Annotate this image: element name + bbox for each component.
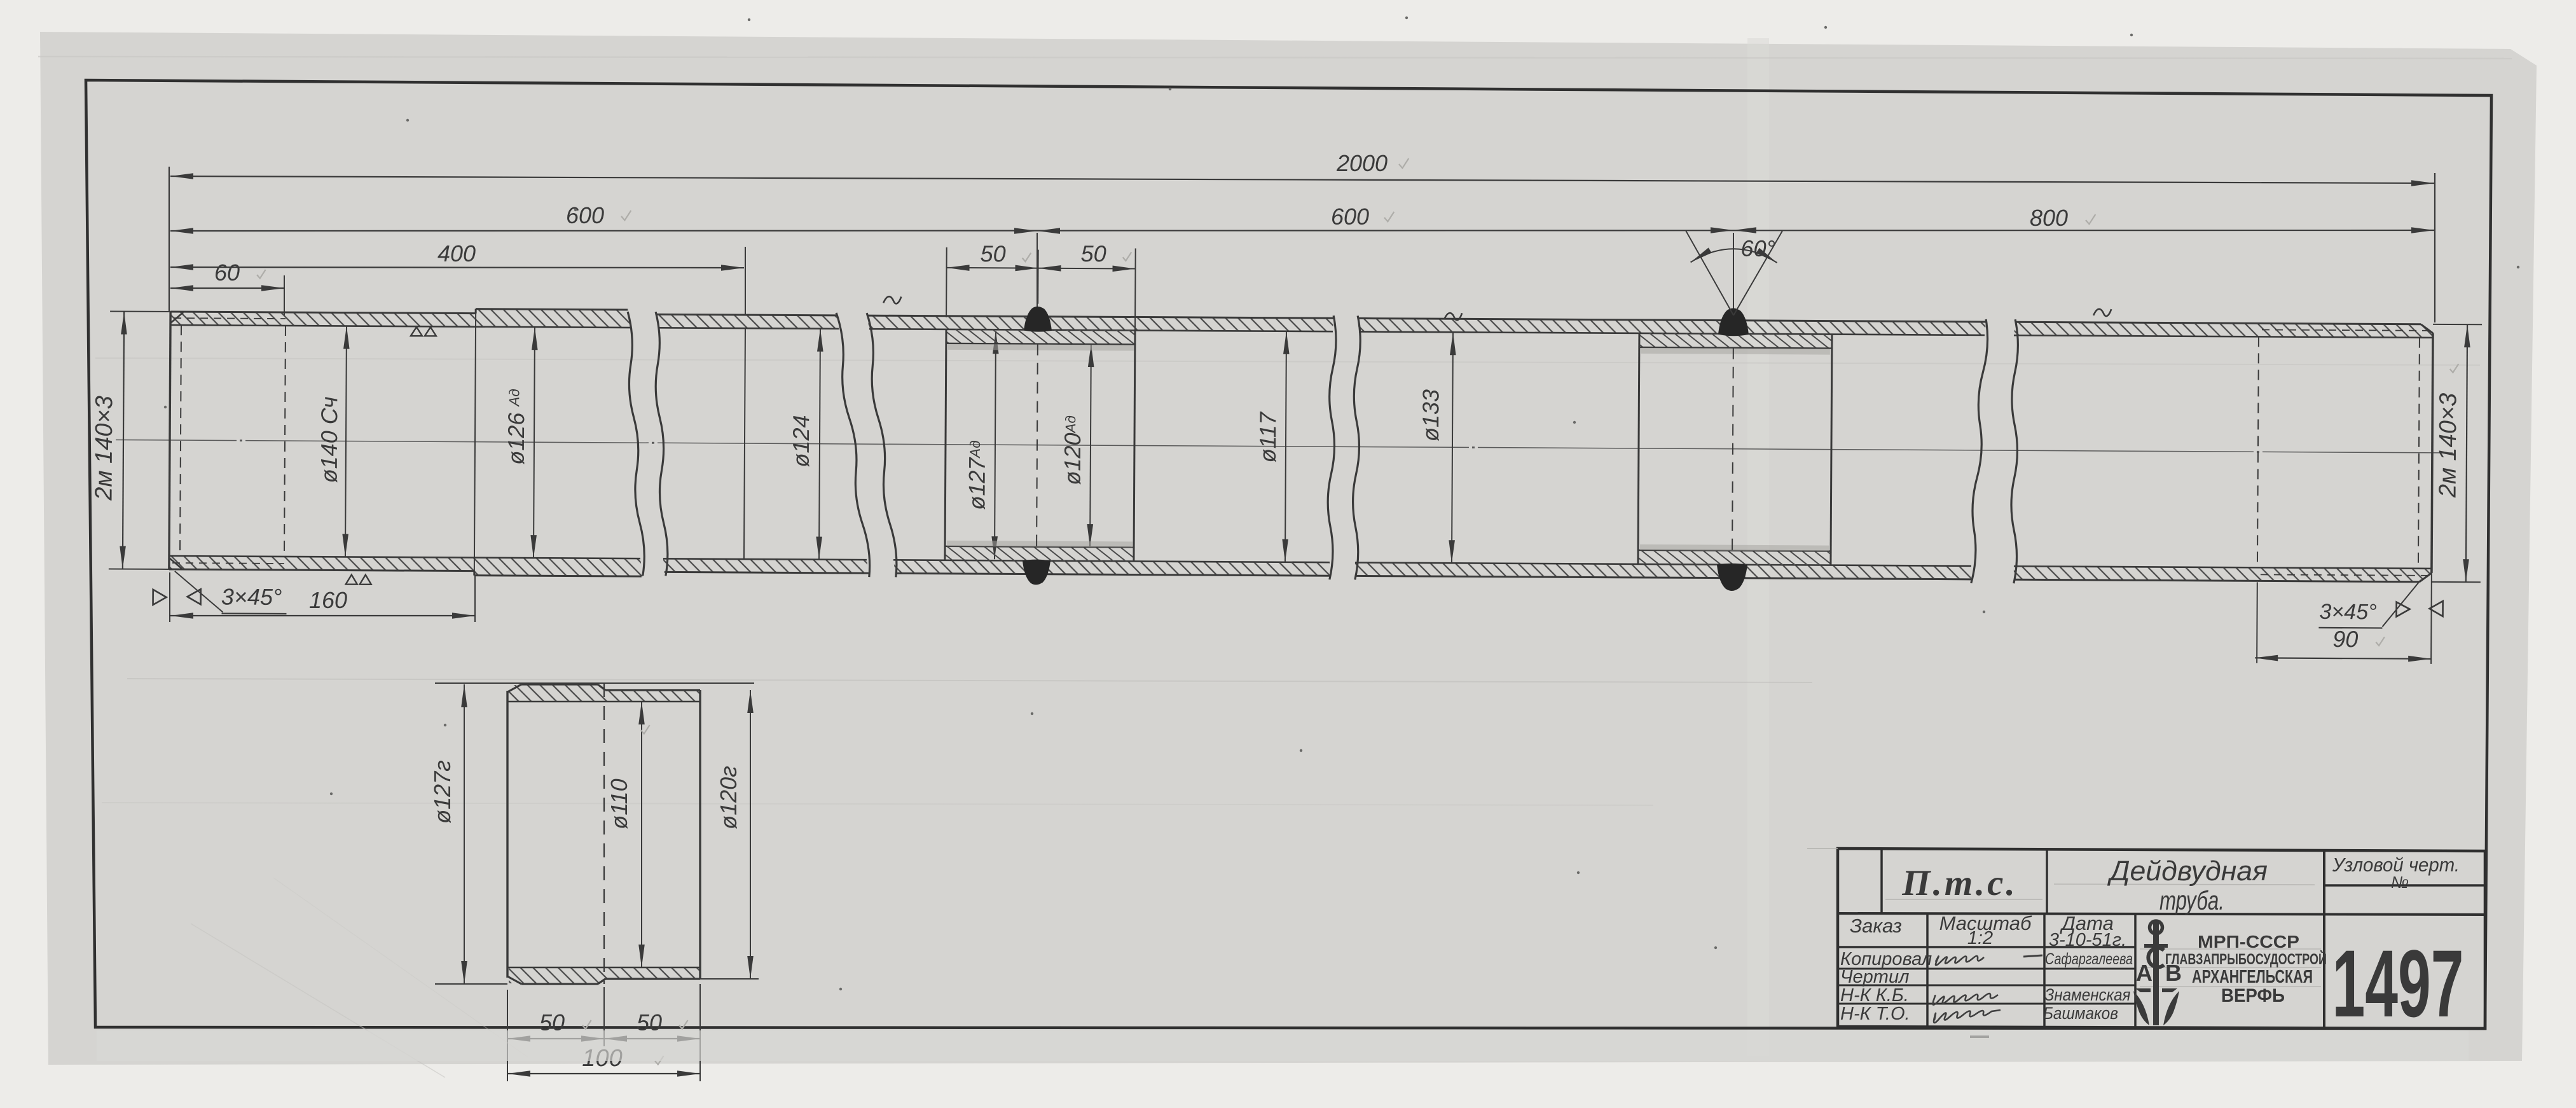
svg-text:ВЕРФЬ: ВЕРФЬ: [2221, 985, 2285, 1006]
svg-text:А: А: [2136, 960, 2152, 986]
svg-text:800: 800: [2030, 205, 2068, 231]
svg-text:Дейдвудная: Дейдвудная: [2107, 855, 2268, 887]
svg-text:Знаменская: Знаменская: [2045, 985, 2131, 1004]
svg-text:3×45°: 3×45°: [2319, 600, 2376, 625]
svg-text:160: 160: [309, 587, 347, 613]
svg-text:50: 50: [981, 240, 1006, 267]
svg-text:Заказ: Заказ: [1850, 915, 1902, 937]
svg-text:2000: 2000: [1336, 150, 1388, 176]
svg-text:ø124: ø124: [788, 415, 814, 467]
svg-text:90: 90: [2332, 626, 2358, 652]
svg-text:Башмаков: Башмаков: [2043, 1004, 2118, 1023]
svg-text:3-10-51г.: 3-10-51г.: [2049, 930, 2126, 950]
svg-text:П.т.с.: П.т.с.: [1901, 863, 2017, 903]
svg-text:ø120г: ø120г: [715, 766, 741, 829]
svg-text:ø127г: ø127г: [429, 760, 455, 824]
svg-text:ГЛАВЗАПРЫБОСУДОСТРОЙ: ГЛАВЗАПРЫБОСУДОСТРОЙ: [2165, 950, 2327, 968]
svg-text:МРП-СССР: МРП-СССР: [2198, 932, 2299, 952]
svg-text:2м 140×3: 2м 140×3: [2435, 393, 2462, 499]
svg-text:50: 50: [1081, 240, 1106, 267]
svg-text:600: 600: [566, 202, 604, 228]
svg-text:1497: 1497: [2332, 931, 2464, 1037]
svg-text:АРХАНГЕЛЬСКАЯ: АРХАНГЕЛЬСКАЯ: [2192, 967, 2313, 987]
svg-text:Чертил: Чертил: [1840, 967, 1909, 987]
svg-text:Н-К К.Б.: Н-К К.Б.: [1840, 985, 1909, 1006]
svg-text:Сафаргалеева: Сафаргалеева: [2045, 950, 2133, 968]
svg-text:60: 60: [214, 260, 240, 286]
svg-text:400: 400: [437, 240, 476, 267]
svg-text:3×45°: 3×45°: [221, 583, 282, 610]
svg-text:Н-К Т.О.: Н-К Т.О.: [1840, 1004, 1910, 1024]
svg-text:труба.: труба.: [2159, 885, 2224, 915]
svg-text:600: 600: [1331, 204, 1369, 230]
svg-text:ø110: ø110: [606, 779, 632, 829]
svg-text:№: №: [2391, 873, 2409, 892]
svg-text:2м 140×3: 2м 140×3: [90, 396, 118, 501]
svg-text:ø117: ø117: [1255, 411, 1281, 463]
svg-text:ø140 Сч: ø140 Сч: [316, 396, 343, 483]
svg-text:60°: 60°: [1740, 235, 1775, 261]
svg-text:1:2: 1:2: [1967, 928, 1993, 948]
svg-text:ø133: ø133: [1417, 389, 1443, 441]
